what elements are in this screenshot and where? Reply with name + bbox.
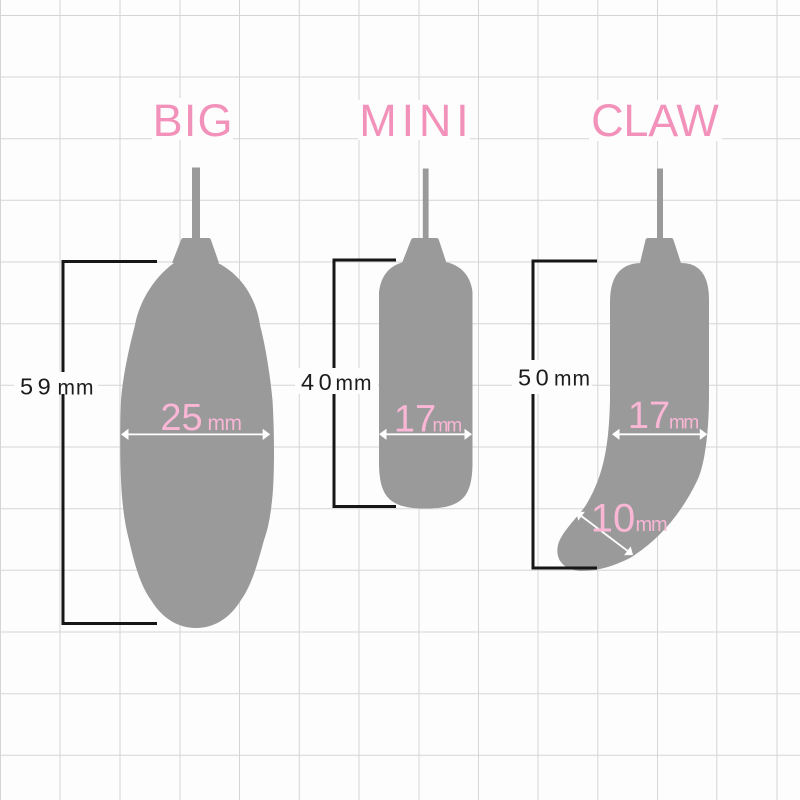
- svg-text:40: 40: [301, 369, 336, 395]
- svg-text:mm: mm: [336, 372, 373, 395]
- svg-text:25: 25: [160, 397, 202, 439]
- svg-text:17: 17: [628, 395, 670, 437]
- svg-text:17: 17: [394, 399, 436, 441]
- svg-text:mm: mm: [433, 416, 462, 437]
- svg-text:10: 10: [591, 497, 636, 541]
- svg-text:mm: mm: [58, 377, 95, 400]
- svg-text:50: 50: [518, 365, 553, 391]
- svg-text:mm: mm: [554, 368, 591, 391]
- svg-text:mm: mm: [208, 412, 242, 435]
- svg-text:mm: mm: [636, 514, 667, 536]
- svg-text:CLAW: CLAW: [591, 95, 719, 146]
- svg-text:MINI: MINI: [359, 95, 473, 146]
- svg-text:mm: mm: [669, 413, 698, 434]
- svg-text:BIG: BIG: [153, 95, 234, 146]
- svg-text:59: 59: [20, 374, 55, 400]
